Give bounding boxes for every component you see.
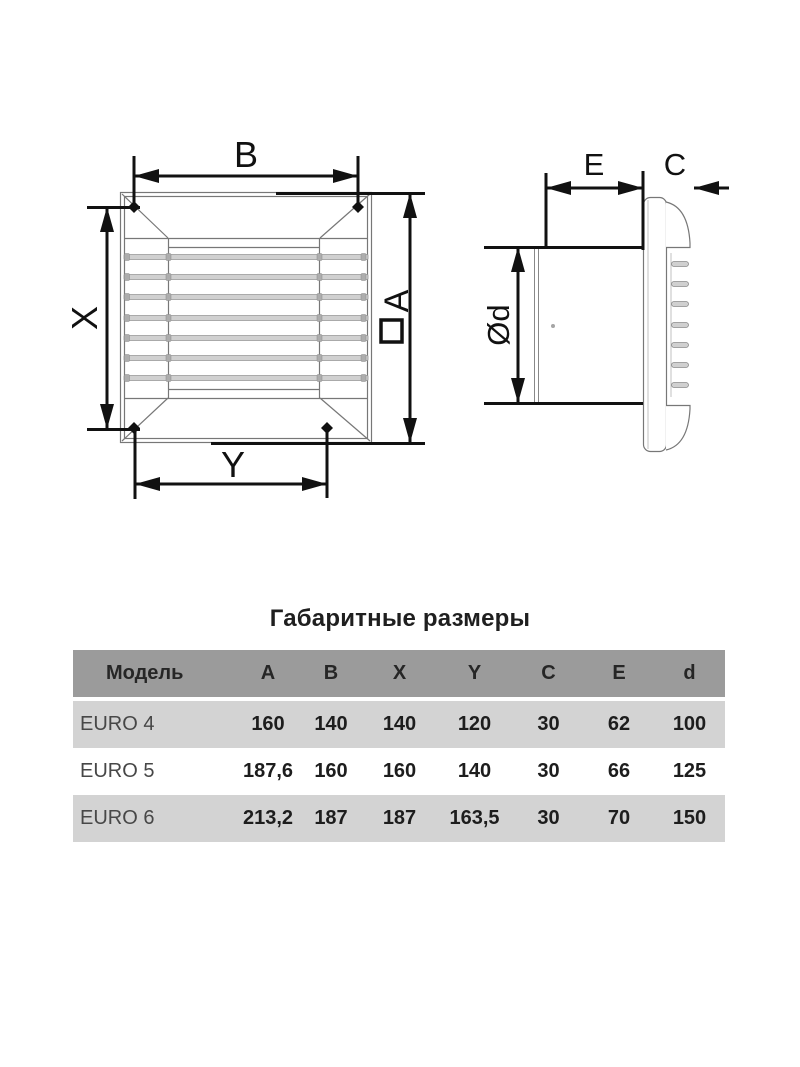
a-arrowhead-bottom bbox=[403, 418, 417, 443]
slat-notch bbox=[317, 274, 322, 281]
y-arrowhead-right bbox=[302, 477, 327, 491]
louver-slat bbox=[124, 356, 368, 361]
dim-label-a: A bbox=[378, 289, 416, 312]
d-arrowhead-top bbox=[511, 247, 525, 272]
slat-notch bbox=[361, 355, 366, 362]
table-title: Габаритные размеры bbox=[0, 605, 800, 633]
louver-slat bbox=[124, 255, 368, 260]
slat-notch bbox=[166, 335, 171, 342]
y-arrowhead-left bbox=[135, 477, 160, 491]
value-cell: 140 bbox=[363, 699, 436, 748]
side-louver-slat bbox=[672, 282, 689, 287]
model-cell: EURO 4 bbox=[73, 699, 237, 748]
column-header-c: C bbox=[513, 650, 584, 699]
d-arrowhead-bottom bbox=[511, 378, 525, 403]
x-arrowhead-top bbox=[100, 207, 114, 232]
value-cell: 30 bbox=[513, 748, 584, 795]
duct bbox=[535, 248, 539, 402]
value-cell: 125 bbox=[654, 748, 725, 795]
dimensions-table: Модель A B X Y C E d EURO 41601401401203… bbox=[73, 650, 725, 842]
slat-notch bbox=[166, 294, 171, 301]
column-header-d: d bbox=[654, 650, 725, 699]
side-louver-slat bbox=[672, 262, 689, 267]
dim-label-e: E bbox=[584, 147, 605, 182]
duct-center-mark bbox=[551, 324, 555, 328]
value-cell: 100 bbox=[654, 699, 725, 748]
slat-notch bbox=[317, 315, 322, 322]
slat-notch bbox=[166, 315, 171, 322]
slat-notch bbox=[125, 375, 130, 382]
value-cell: 187,6 bbox=[237, 748, 299, 795]
value-cell: 187 bbox=[299, 795, 363, 842]
slat-notch bbox=[361, 315, 366, 322]
value-cell: 163,5 bbox=[436, 795, 513, 842]
model-cell: EURO 5 bbox=[73, 748, 237, 795]
slat-notch bbox=[317, 375, 322, 382]
slat-notch bbox=[125, 335, 130, 342]
slat-notch bbox=[361, 254, 366, 261]
value-cell: 140 bbox=[299, 699, 363, 748]
x-arrowhead-bottom bbox=[100, 404, 114, 429]
louver-slat bbox=[124, 376, 368, 381]
side-view: E C Ød bbox=[481, 147, 729, 452]
value-cell: 30 bbox=[513, 795, 584, 842]
value-cell: 150 bbox=[654, 795, 725, 842]
dim-label-y: Y bbox=[221, 444, 245, 485]
dim-label-c: C bbox=[664, 147, 686, 182]
corner-diagonal-top-left bbox=[122, 194, 168, 238]
column-header-e: E bbox=[584, 650, 654, 699]
b-arrowhead-right bbox=[333, 169, 358, 183]
cover-bulge-bottom bbox=[666, 406, 690, 451]
model-cell: EURO 6 bbox=[73, 795, 237, 842]
table-body: EURO 41601401401203062100EURO 5187,61601… bbox=[73, 699, 725, 842]
slat-notch bbox=[125, 274, 130, 281]
column-header-b: B bbox=[299, 650, 363, 699]
table-row: EURO 41601401401203062100 bbox=[73, 699, 725, 748]
dim-label-b: B bbox=[234, 134, 258, 175]
front-louvers bbox=[124, 254, 368, 382]
slat-notch bbox=[166, 254, 171, 261]
table-row: EURO 6213,2187187163,53070150 bbox=[73, 795, 725, 842]
slat-notch bbox=[317, 335, 322, 342]
column-header-a: A bbox=[237, 650, 299, 699]
side-louvers bbox=[672, 262, 689, 388]
value-cell: 187 bbox=[363, 795, 436, 842]
corner-diagonal-bottom-left bbox=[122, 398, 168, 441]
louver-slat bbox=[124, 336, 368, 341]
side-louver-slat bbox=[672, 302, 689, 307]
technical-drawing: B X Y A bbox=[0, 0, 800, 560]
slat-notch bbox=[317, 355, 322, 362]
slat-notch bbox=[125, 254, 130, 261]
slat-notch bbox=[361, 294, 366, 301]
slat-notch bbox=[125, 315, 130, 322]
mounting-plate bbox=[644, 198, 667, 452]
value-cell: 160 bbox=[363, 748, 436, 795]
slat-notch bbox=[361, 335, 366, 342]
table-row: EURO 5187,61601601403066125 bbox=[73, 748, 725, 795]
slat-notch bbox=[125, 355, 130, 362]
dim-label-x: X bbox=[64, 306, 105, 330]
column-header-model: Модель bbox=[73, 650, 237, 699]
value-cell: 160 bbox=[299, 748, 363, 795]
slat-notch bbox=[317, 254, 322, 261]
value-cell: 30 bbox=[513, 699, 584, 748]
dim-label-diameter: Ød bbox=[481, 304, 516, 345]
slat-notch bbox=[166, 274, 171, 281]
front-view: B X Y A bbox=[64, 134, 425, 499]
louver-slat bbox=[124, 316, 368, 321]
cover-bulge-top bbox=[666, 202, 690, 248]
slat-notch bbox=[317, 294, 322, 301]
side-louver-slat bbox=[672, 363, 689, 368]
value-cell: 70 bbox=[584, 795, 654, 842]
value-cell: 213,2 bbox=[237, 795, 299, 842]
louver-slat bbox=[124, 295, 368, 300]
slat-notch bbox=[361, 375, 366, 382]
column-header-y: Y bbox=[436, 650, 513, 699]
slat-notch bbox=[166, 355, 171, 362]
side-louver-slat bbox=[672, 383, 689, 388]
table-header-row: Модель A B X Y C E d bbox=[73, 650, 725, 699]
value-cell: 120 bbox=[436, 699, 513, 748]
a-arrowhead-top bbox=[403, 193, 417, 218]
value-cell: 160 bbox=[237, 699, 299, 748]
side-louver-slat bbox=[672, 343, 689, 348]
e-arrowhead-left bbox=[546, 181, 571, 195]
louver-slat bbox=[124, 275, 368, 280]
slat-notch bbox=[125, 294, 130, 301]
value-cell: 140 bbox=[436, 748, 513, 795]
slat-notch bbox=[166, 375, 171, 382]
e-arrowhead-right bbox=[618, 181, 643, 195]
dimension-e bbox=[546, 171, 643, 250]
b-arrowhead-left bbox=[134, 169, 159, 183]
slat-notch bbox=[361, 274, 366, 281]
column-header-x: X bbox=[363, 650, 436, 699]
value-cell: 62 bbox=[584, 699, 654, 748]
corner-diagonal-top-right bbox=[320, 194, 370, 238]
side-louver-slat bbox=[672, 323, 689, 328]
c-arrowhead bbox=[694, 181, 719, 195]
square-section-symbol bbox=[381, 320, 402, 342]
value-cell: 66 bbox=[584, 748, 654, 795]
